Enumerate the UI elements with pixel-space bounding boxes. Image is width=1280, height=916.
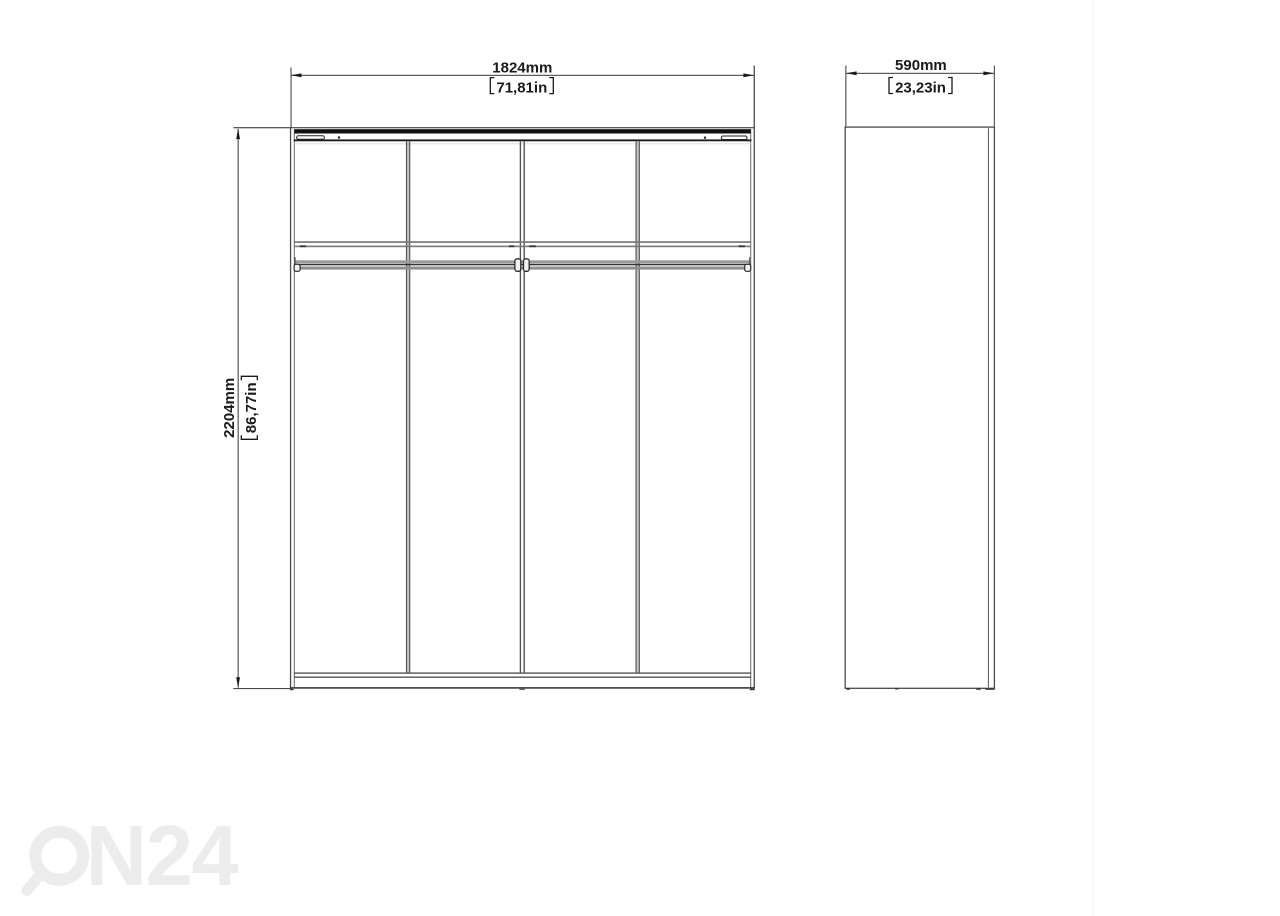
svg-text:23,23in: 23,23in — [895, 79, 946, 96]
svg-text:590mm: 590mm — [895, 57, 947, 74]
svg-text:1824mm: 1824mm — [492, 60, 552, 77]
svg-text:N24: N24 — [86, 809, 239, 904]
svg-text:2204mm: 2204mm — [221, 378, 238, 438]
svg-text:71,81in: 71,81in — [496, 80, 547, 97]
svg-text:86,77in: 86,77in — [243, 382, 260, 433]
